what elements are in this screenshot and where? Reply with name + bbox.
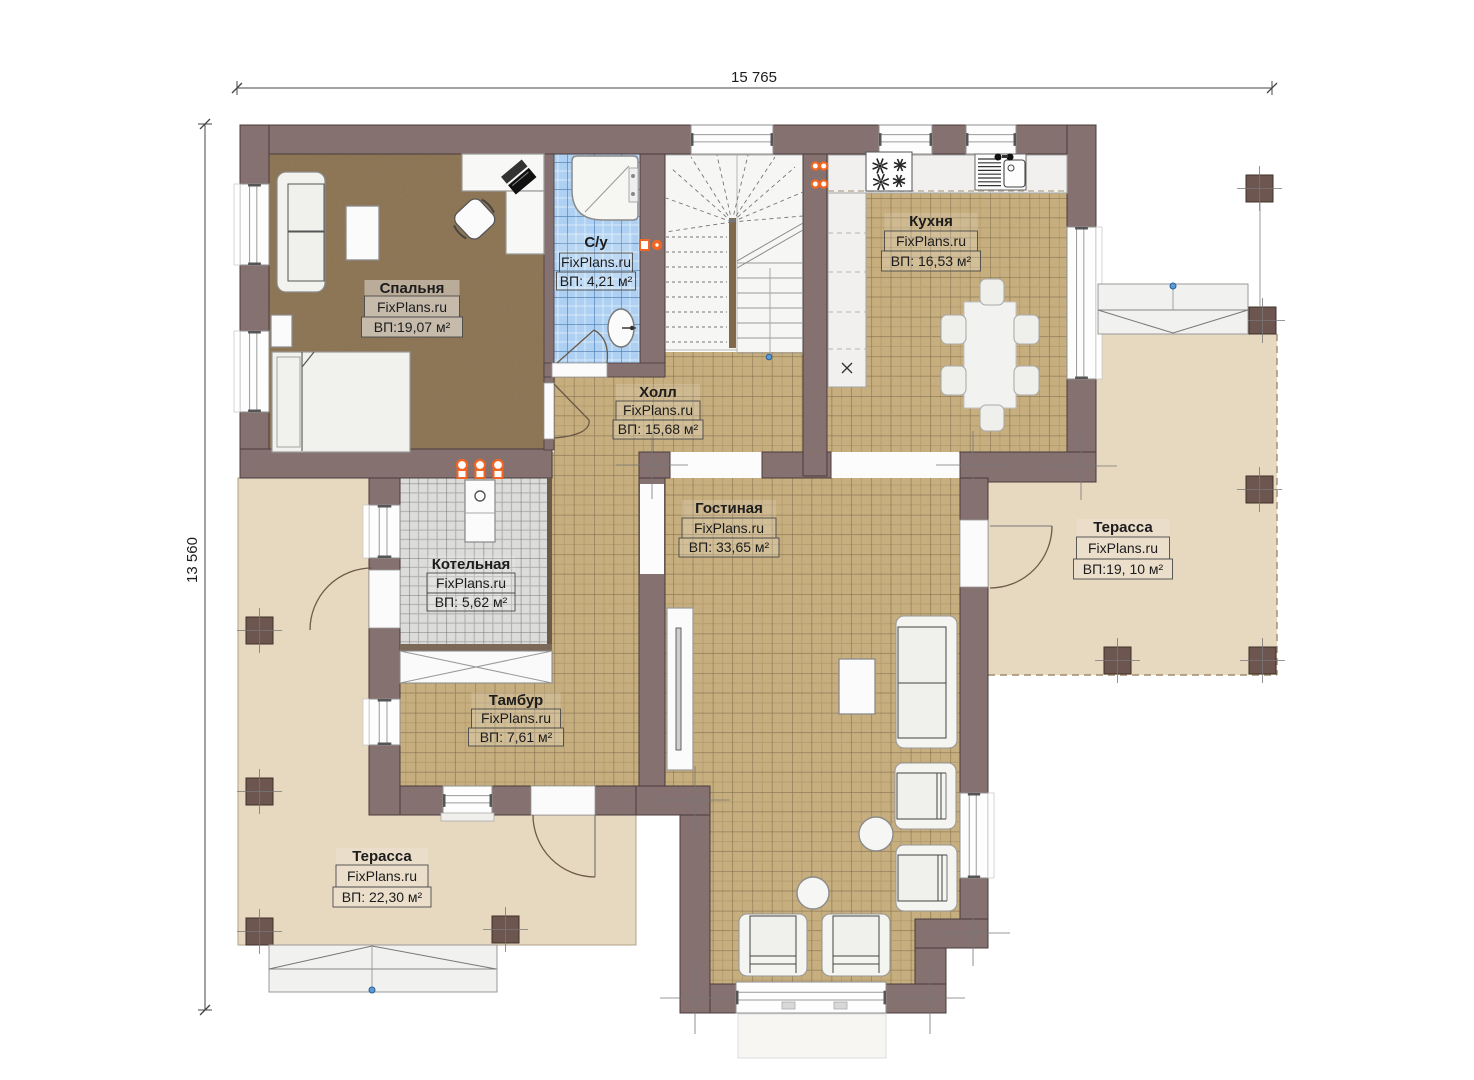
svg-text:FixPlans.ru: FixPlans.ru (694, 520, 764, 536)
svg-text:ВП: 15,68 м²: ВП: 15,68 м² (618, 421, 699, 437)
svg-text:FixPlans.ru: FixPlans.ru (1088, 540, 1158, 556)
svg-text:Кухня: Кухня (909, 213, 953, 230)
svg-text:FixPlans.ru: FixPlans.ru (481, 710, 551, 726)
svg-text:ВП: 22,30 м²: ВП: 22,30 м² (342, 889, 423, 905)
svg-text:ВП: 4,21 м²: ВП: 4,21 м² (560, 273, 633, 289)
svg-text:ВП:19,07 м²: ВП:19,07 м² (374, 319, 451, 335)
svg-text:13 560: 13 560 (184, 537, 201, 583)
svg-text:С/у: С/у (584, 234, 608, 251)
svg-text:15 765: 15 765 (731, 69, 777, 86)
svg-text:Терасса: Терасса (352, 848, 412, 865)
svg-text:Тамбур: Тамбур (489, 692, 543, 709)
svg-text:FixPlans.ru: FixPlans.ru (436, 575, 506, 591)
svg-text:FixPlans.ru: FixPlans.ru (623, 402, 693, 418)
svg-text:FixPlans.ru: FixPlans.ru (377, 299, 447, 315)
svg-text:ВП: 33,65 м²: ВП: 33,65 м² (689, 539, 770, 555)
svg-text:ВП: 16,53 м²: ВП: 16,53 м² (891, 253, 972, 269)
svg-text:Котельная: Котельная (432, 556, 511, 573)
svg-text:ВП:19, 10 м²: ВП:19, 10 м² (1083, 561, 1164, 577)
svg-text:Терасса: Терасса (1093, 519, 1153, 536)
svg-text:FixPlans.ru: FixPlans.ru (561, 254, 631, 270)
svg-text:FixPlans.ru: FixPlans.ru (347, 868, 417, 884)
svg-text:FixPlans.ru: FixPlans.ru (896, 233, 966, 249)
svg-text:ВП: 5,62 м²: ВП: 5,62 м² (435, 594, 508, 610)
svg-text:Гостиная: Гостиная (695, 500, 763, 517)
svg-text:Спальня: Спальня (380, 280, 445, 297)
svg-text:ВП: 7,61 м²: ВП: 7,61 м² (480, 729, 553, 745)
svg-text:Холл: Холл (639, 384, 677, 401)
